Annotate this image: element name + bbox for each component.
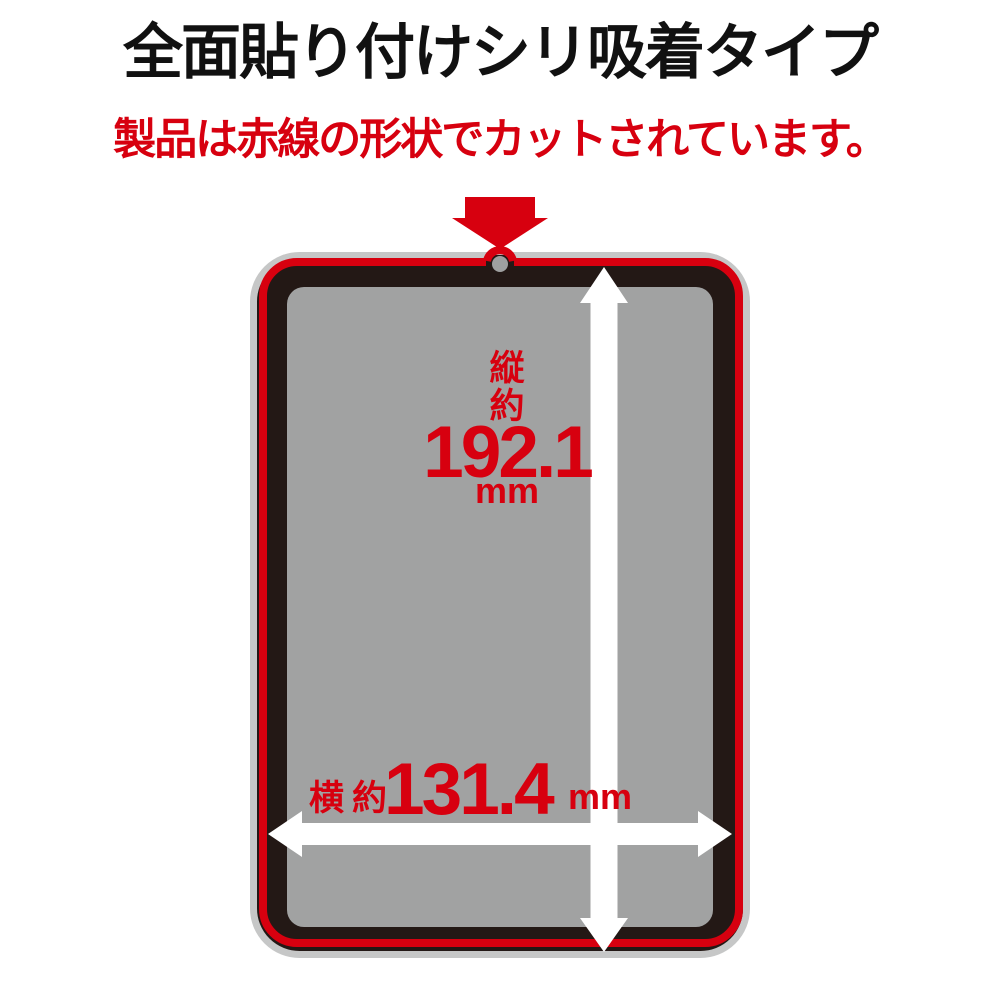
- width-value: 131.4: [384, 753, 552, 826]
- red-down-arrow-icon: [452, 197, 548, 249]
- product-dimension-diagram: 全面貼り付けシリ吸着タイプ 製品は赤線の形状でカットされています。 縦 約 19…: [0, 0, 1000, 1000]
- height-unit: mm: [400, 473, 614, 509]
- height-axis-char: 縦: [400, 351, 614, 386]
- width-axis-char: 横: [309, 781, 344, 816]
- camera-hole-icon: [492, 256, 508, 272]
- width-approx-char: 約: [352, 781, 387, 816]
- width-unit: mm: [568, 779, 632, 815]
